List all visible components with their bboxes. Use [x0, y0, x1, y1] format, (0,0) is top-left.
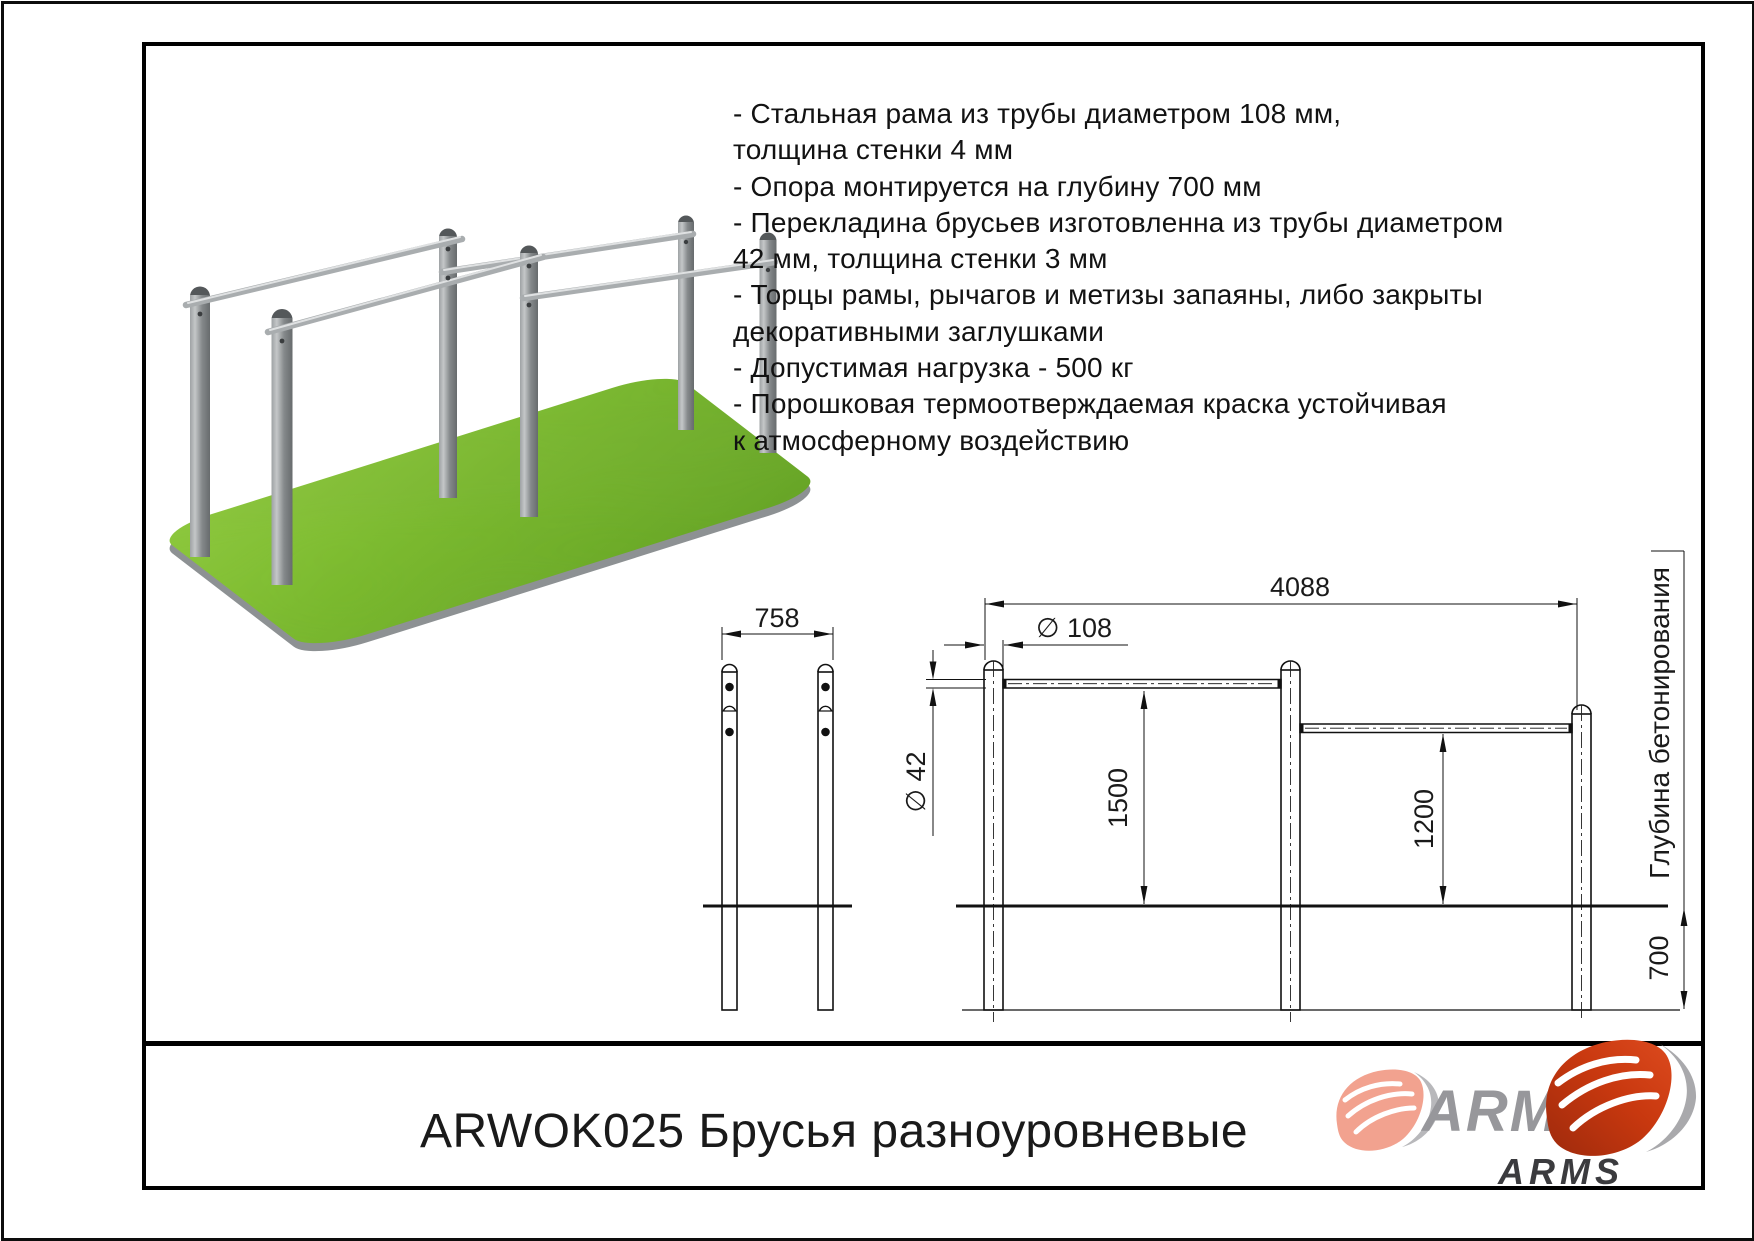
front-view-post [722, 665, 737, 1010]
spec-line: к атмосферному воздействию [733, 423, 1533, 459]
dim-arrow [814, 631, 832, 638]
dim-length-4088: 4088 [1270, 572, 1330, 602]
dim-depth-700: 700 [1644, 935, 1674, 980]
spec-line: - Стальная рама из трубы диаметром 108 м… [733, 96, 1533, 132]
dim-post-diameter-108: ∅ 108 [1036, 613, 1112, 643]
spec-line: толщина стенки 4 мм [733, 132, 1533, 168]
product-3d-render [155, 216, 825, 661]
arms-logo: ARMS ARMS [1336, 1040, 1696, 1192]
parallel-bar-rail [186, 237, 462, 305]
spec-line: - Перекладина брусьев изготовленна из тр… [733, 205, 1533, 241]
foundation-depth-label: Глубина бетонирования [1644, 567, 1675, 879]
spec-line: декоративными заглушками [733, 314, 1533, 350]
parallel-bar-rail [268, 255, 543, 332]
dim-42 [926, 650, 986, 836]
dim-bar-diameter-42: ∅ 42 [901, 751, 931, 812]
dim-width-758: 758 [754, 603, 799, 633]
front-view-drawing: 758 [703, 603, 852, 1010]
lower-bar [1300, 724, 1572, 733]
product-title: ARWOK025 Брусья разноуровневые [420, 1106, 1248, 1158]
spec-line: - Торцы рамы, рычагов и метизы запаяны, … [733, 277, 1533, 313]
spec-line: - Порошковая термоотверждаемая краска ус… [733, 386, 1533, 422]
spec-list: - Стальная рама из трубы диаметром 108 м… [733, 96, 1533, 459]
dim-arrow [723, 631, 741, 638]
equipment-post [678, 216, 694, 431]
top-bar [1003, 680, 1281, 689]
spec-line: - Допустимая нагрузка - 500 кг [733, 350, 1533, 386]
dim-height-1200: 1200 [1409, 789, 1439, 849]
side-view-drawing: 4088 ∅ 108 ∅ 42 1500 1200 [901, 551, 1687, 1022]
equipment-post [520, 246, 538, 518]
side-view-post [1572, 705, 1591, 1010]
equipment-post [190, 287, 210, 558]
front-view-post [818, 665, 833, 1010]
spec-line: - Опора монтируется на глубину 700 мм [733, 169, 1533, 205]
arms-wordmark-dark: ARMS [1497, 1151, 1624, 1192]
dim-height-1500: 1500 [1103, 768, 1133, 828]
equipment-post [272, 309, 293, 585]
arms-shield-icon-large [1546, 1040, 1696, 1156]
parallel-bar-rail [442, 232, 693, 272]
spec-line: 42 мм, толщина стенки 3 мм [733, 241, 1533, 277]
